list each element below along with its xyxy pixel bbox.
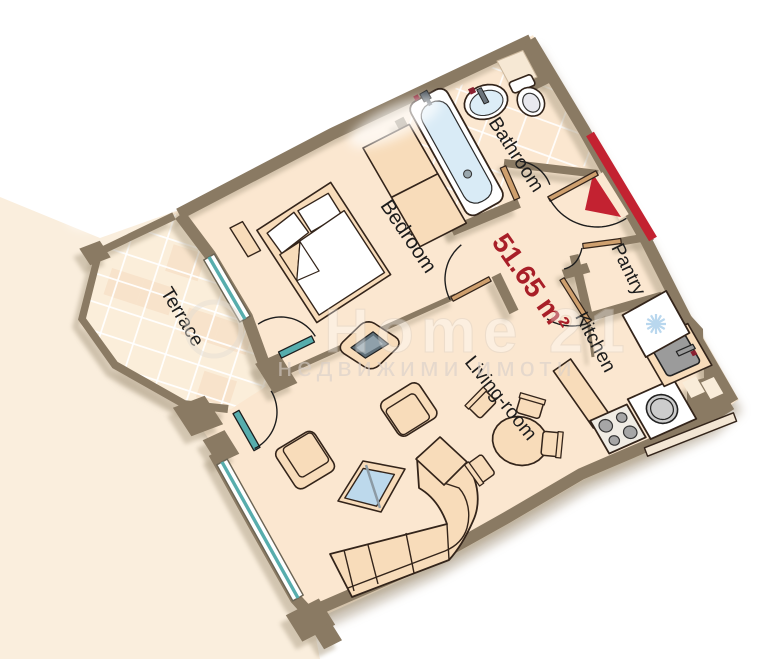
svg-text:недвижими имоти: недвижими имоти xyxy=(277,352,576,382)
